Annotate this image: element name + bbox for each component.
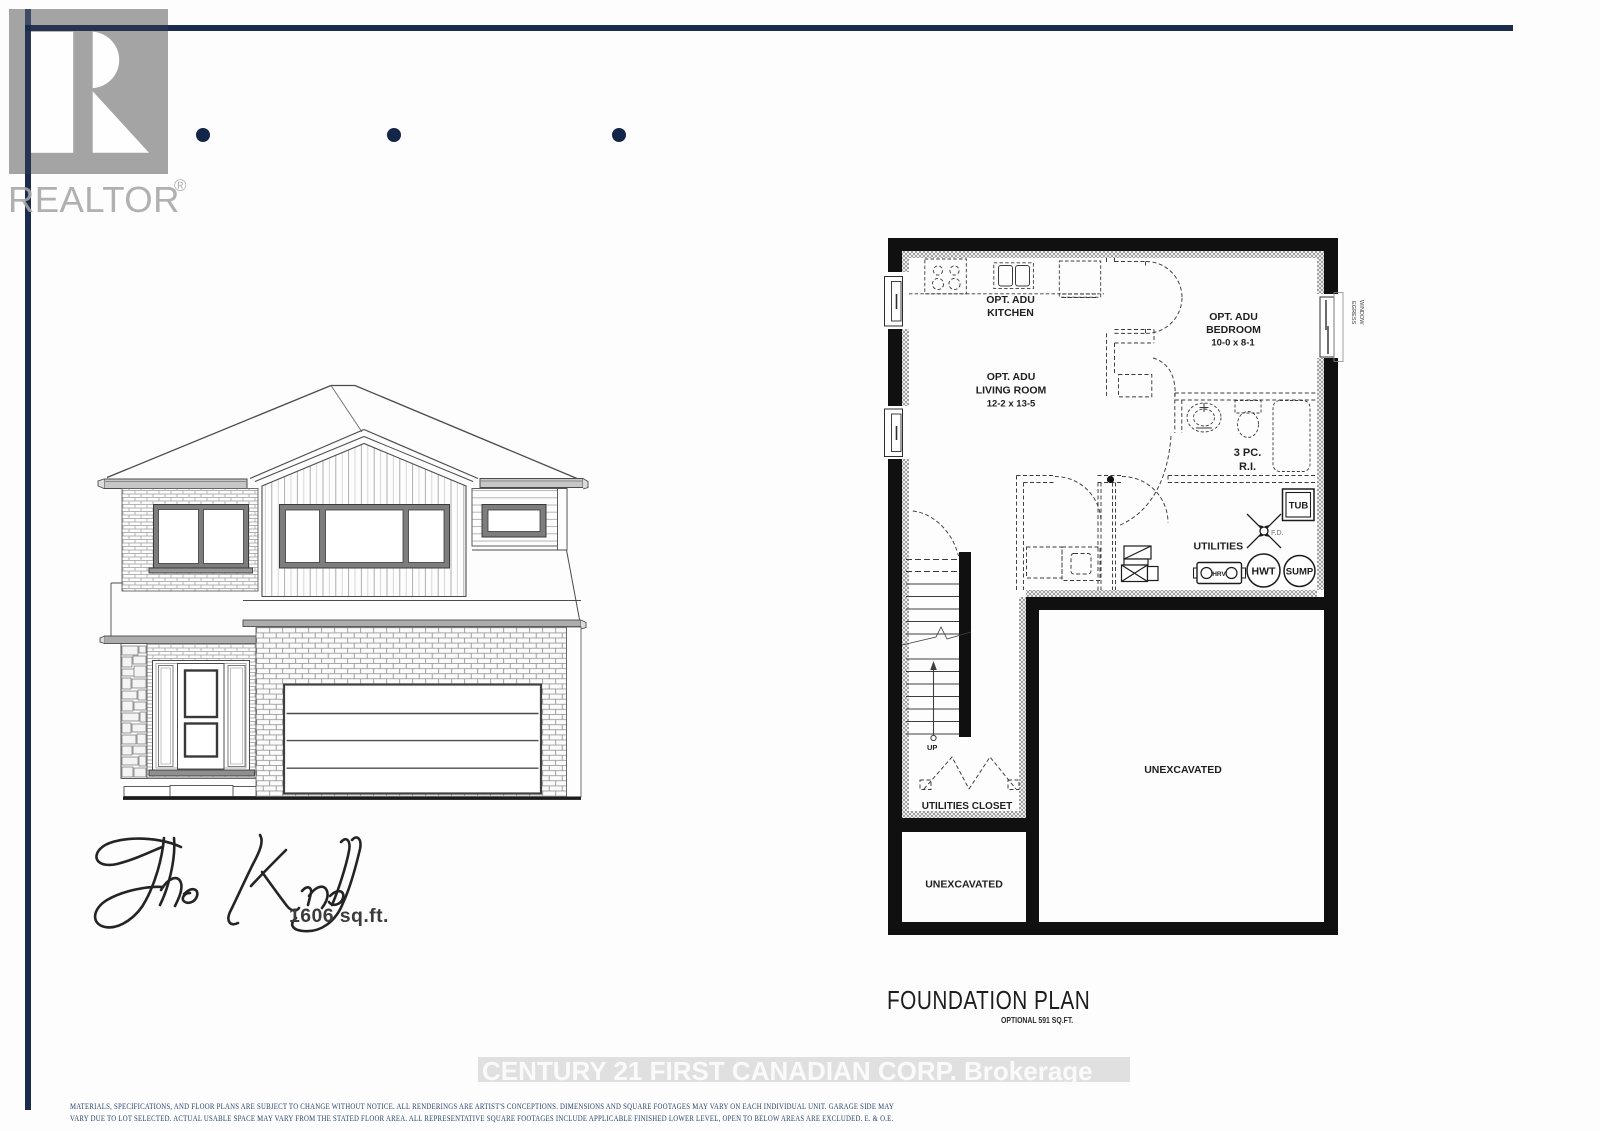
svg-text:SUMP: SUMP xyxy=(1286,567,1314,578)
svg-text:TUB: TUB xyxy=(1289,501,1309,512)
svg-text:OPT. ADU: OPT. ADU xyxy=(986,294,1035,306)
svg-text:UTILITIES: UTILITIES xyxy=(1194,541,1244,553)
svg-text:10-0 x 8-1: 10-0 x 8-1 xyxy=(1211,338,1255,349)
svg-text:UNEXCAVATED: UNEXCAVATED xyxy=(1144,764,1222,776)
svg-text:HWT: HWT xyxy=(1252,566,1276,578)
svg-text:UTILITIES CLOSET: UTILITIES CLOSET xyxy=(922,801,1013,812)
svg-text:UP: UP xyxy=(927,743,937,752)
svg-text:3 PC.: 3 PC. xyxy=(1234,447,1262,459)
svg-text:WINDOW: WINDOW xyxy=(1358,300,1364,325)
svg-text:BEDROOM: BEDROOM xyxy=(1206,324,1261,336)
svg-text:HRV: HRV xyxy=(1212,571,1226,578)
svg-text:LIVING ROOM: LIVING ROOM xyxy=(976,385,1047,397)
svg-text:EGRESS: EGRESS xyxy=(1350,301,1356,325)
svg-text:R.I.: R.I. xyxy=(1239,461,1256,473)
svg-text:®: ® xyxy=(174,176,187,195)
svg-text:KITCHEN: KITCHEN xyxy=(987,307,1034,319)
svg-text:1606 sq.ft.: 1606 sq.ft. xyxy=(289,905,389,927)
svg-text:OPT. ADU: OPT. ADU xyxy=(1209,311,1258,323)
svg-text:12-2 x 13-5: 12-2 x 13-5 xyxy=(987,399,1036,410)
svg-text:UNEXCAVATED: UNEXCAVATED xyxy=(925,879,1003,891)
svg-text:OPT. ADU: OPT. ADU xyxy=(987,371,1036,383)
svg-text:F.D.: F.D. xyxy=(1271,530,1284,537)
svg-text:REALTOR: REALTOR xyxy=(8,179,180,220)
